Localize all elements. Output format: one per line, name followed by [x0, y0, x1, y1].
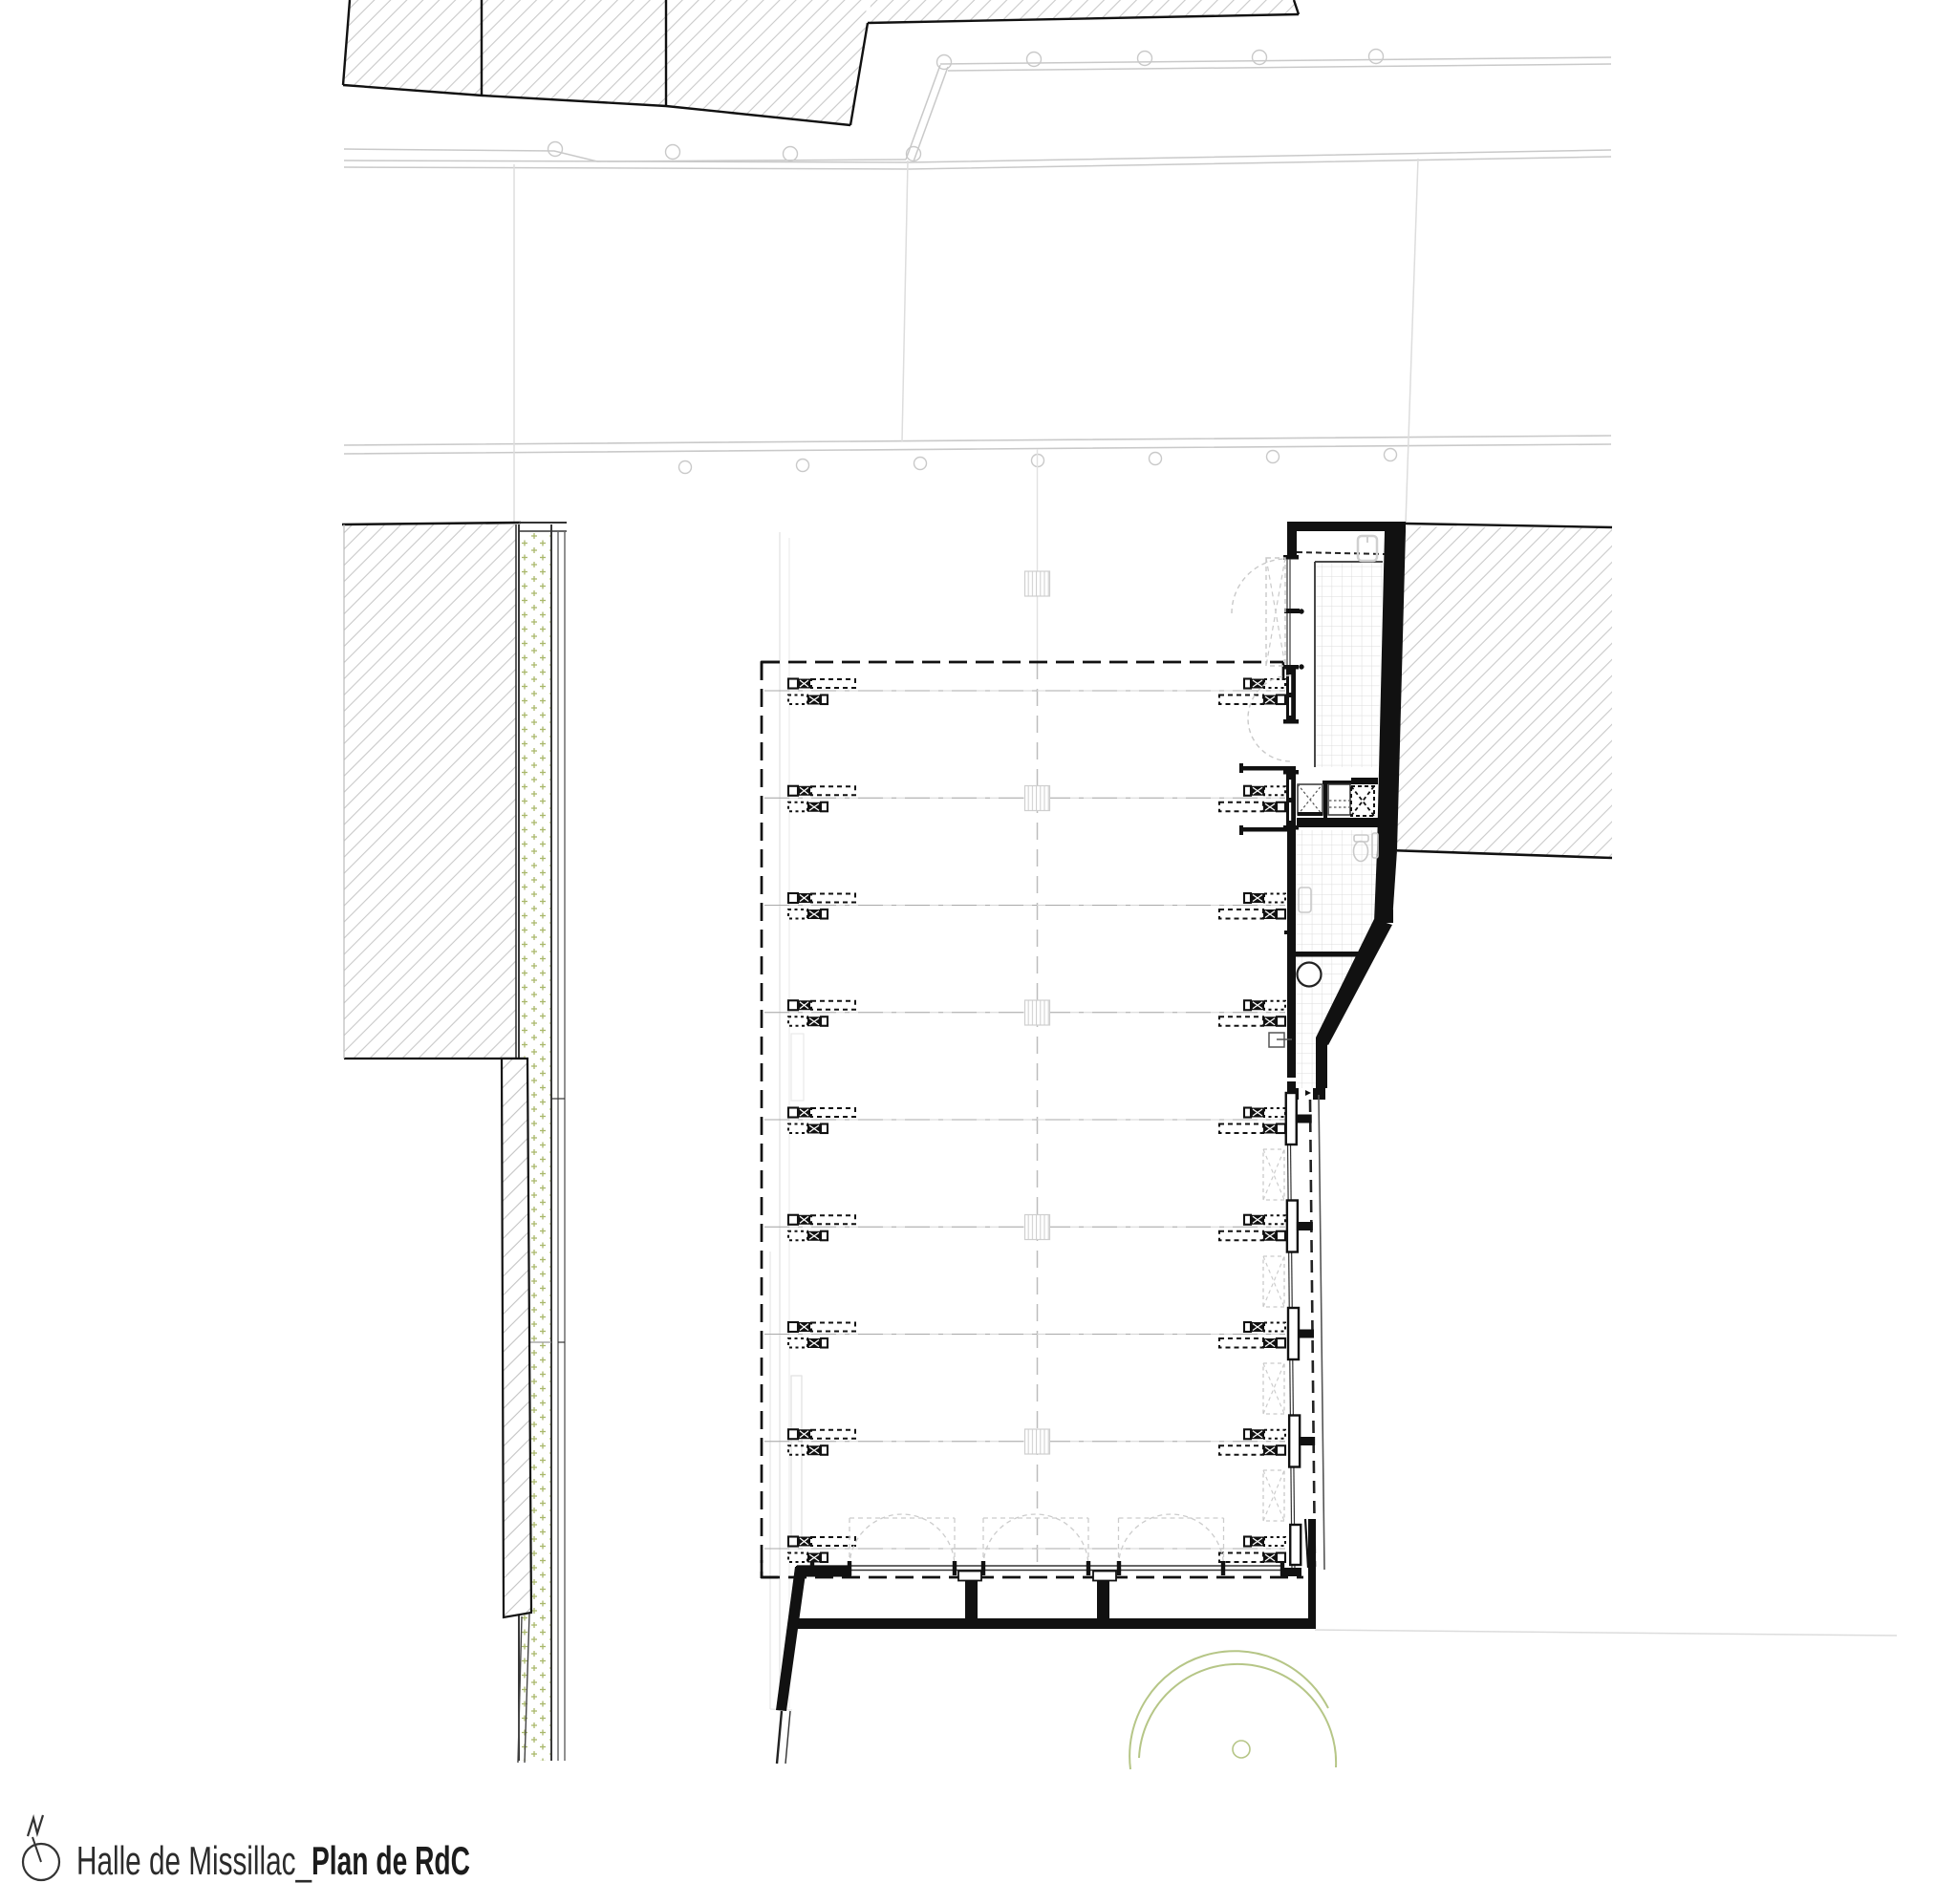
svg-text:Halle de Missillac_: Halle de Missillac_ — [76, 1838, 312, 1883]
svg-text:Plan de RdC: Plan de RdC — [312, 1838, 470, 1883]
